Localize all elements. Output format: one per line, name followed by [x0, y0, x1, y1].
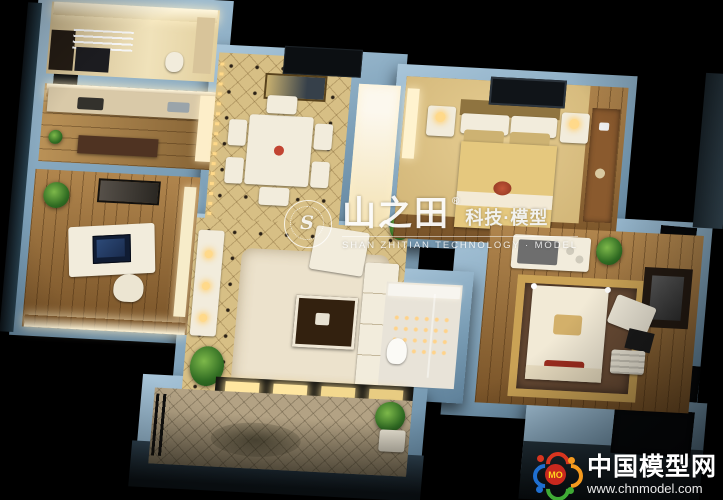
mirror-strip	[388, 284, 461, 300]
room-second-bedroom	[475, 225, 704, 414]
dresser-item	[595, 168, 606, 178]
window-opening-bottom-right	[610, 407, 695, 458]
toilet	[165, 52, 185, 73]
coffee-table	[292, 295, 358, 350]
cabinet-light	[204, 250, 213, 258]
dining-chair	[266, 95, 298, 115]
dining-chair	[310, 161, 330, 188]
brand-suffix: 科技·模型	[465, 209, 548, 227]
laptop	[92, 234, 131, 264]
room-kitchen	[38, 83, 225, 170]
photo-architectural-model: S 山之田 ® 科技·模型 SHAN ZHITIAN TECHNOLOGY · …	[0, 0, 723, 500]
potted-plant-icon	[48, 130, 63, 145]
watermark-chnmodel: MO 中国模型网 www.chnmodel.com	[533, 453, 717, 497]
site-name: 中国模型网	[587, 454, 717, 480]
table-tray	[315, 313, 330, 326]
bed-gold-accent	[553, 314, 583, 335]
tv-wall-back-panel	[283, 46, 363, 78]
toilet	[386, 338, 408, 365]
cabinet-light	[202, 282, 211, 290]
knob	[575, 255, 584, 263]
dining-chair	[313, 124, 333, 151]
stamp-seal-icon: S	[284, 200, 332, 248]
door-panel	[192, 17, 215, 74]
room-balcony	[148, 387, 412, 476]
logo-figure-head	[536, 486, 543, 493]
sink	[167, 102, 190, 113]
dining-table	[244, 114, 314, 187]
dining-chair	[224, 157, 244, 184]
room-laundry-bath	[46, 2, 220, 83]
registered-trademark-icon: ®	[452, 197, 459, 207]
wardrobe-dark	[48, 30, 75, 71]
room-study	[22, 169, 201, 335]
room-bathroom	[378, 281, 463, 389]
dining-chair	[227, 119, 247, 146]
wall-picture	[97, 178, 161, 205]
logo-figure-head	[568, 457, 575, 464]
site-url: www.chnmodel.com	[587, 481, 717, 496]
table-centerpiece	[274, 145, 285, 155]
cabinet-light	[199, 314, 208, 322]
logo-badge-text: MO	[545, 464, 566, 485]
bed	[525, 285, 609, 383]
tv-frame-master	[489, 77, 567, 109]
potted-plant-icon	[42, 181, 70, 208]
brand-subtitle: SHAN ZHITIAN TECHNOLOGY · MODEL	[342, 236, 578, 251]
desk	[68, 223, 155, 277]
laptop-screen	[97, 238, 125, 257]
washer-unit	[74, 47, 110, 73]
stamp-initial: S	[290, 206, 324, 240]
balcony-shade	[148, 387, 412, 476]
watermark-shanzhitian: S 山之田 ® 科技·模型 SHAN ZHITIAN TECHNOLOGY · …	[284, 197, 578, 251]
bed-post	[531, 283, 538, 289]
wall-outer-edge-top-right	[693, 73, 723, 229]
chnmodel-logo-icon: MO	[533, 453, 579, 497]
cooktop	[77, 97, 104, 110]
site-text-block: 中国模型网 www.chnmodel.com	[587, 454, 717, 496]
storage-box	[610, 349, 646, 375]
logo-figure-head	[537, 455, 544, 462]
dresser-item	[599, 122, 610, 130]
desk-chair	[112, 273, 144, 302]
logo-figure-head	[567, 487, 574, 494]
potted-plant-icon	[595, 236, 623, 265]
brand-name: 山之田	[342, 197, 450, 231]
brand-text-block: 山之田 ® 科技·模型 SHAN ZHITIAN TECHNOLOGY · MO…	[342, 197, 578, 251]
tv-cabinet	[190, 230, 225, 337]
kitchen-island	[77, 135, 158, 157]
